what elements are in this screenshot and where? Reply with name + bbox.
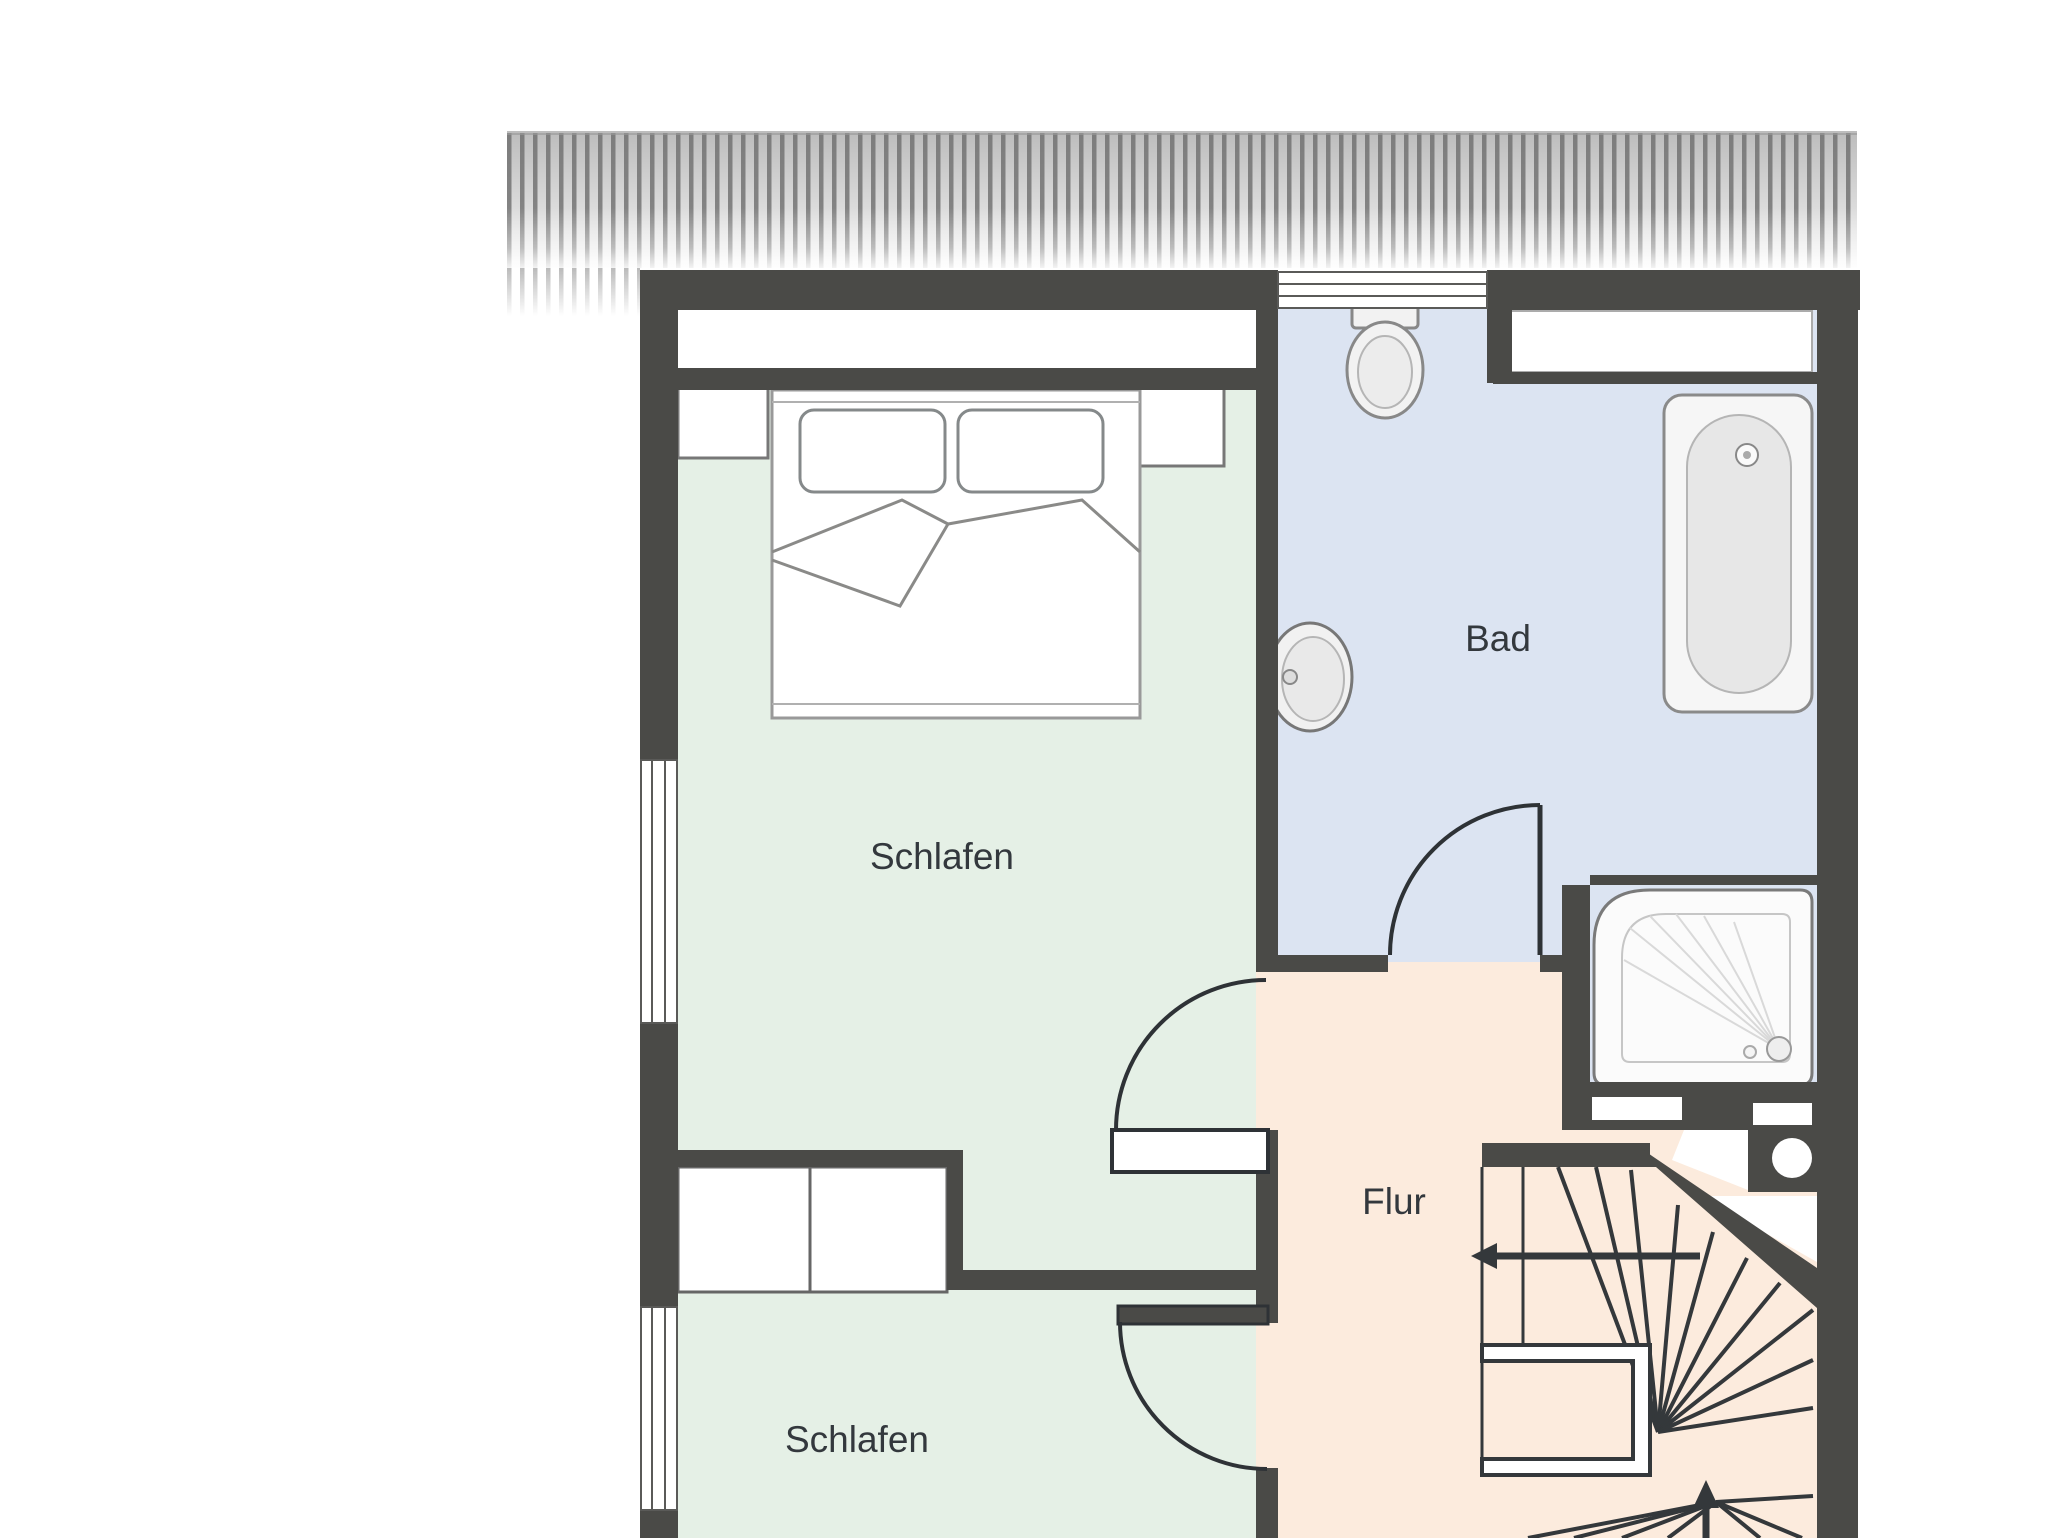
window-left-top: [641, 760, 677, 1023]
label-bedroom-top: Schlafen: [870, 836, 1014, 877]
nightstand-left: [678, 388, 768, 458]
wall-left-3: [640, 1510, 678, 1538]
wardrobe: [678, 1167, 947, 1292]
label-bedroom-bottom: Schlafen: [785, 1419, 929, 1460]
wall-right: [1817, 270, 1858, 1538]
toilet: [1347, 302, 1423, 418]
floor-plan: Schlafen Bad Flur Schlafen: [0, 0, 2048, 1538]
wall-between-bedrooms: [678, 1150, 963, 1167]
wall-stairwell-top: [1482, 1143, 1650, 1167]
shaft-slot-right: [1753, 1103, 1812, 1125]
window-left-bottom: [641, 1307, 677, 1510]
floor-plan-page: Schlafen Bad Flur Schlafen: [0, 0, 2048, 1538]
pillow-right: [958, 410, 1103, 492]
wall-top-right: [1487, 270, 1860, 310]
knee-wall-line: [678, 368, 1256, 390]
double-bed: [772, 390, 1140, 718]
wall-left-2: [640, 1023, 678, 1307]
shower-tray: [1594, 890, 1812, 1085]
roof-niche-box: [1510, 311, 1812, 372]
wall-bedroom-bathroom: [1256, 270, 1278, 972]
flue-pipe: [1772, 1138, 1812, 1178]
window-bathroom-top: [1278, 272, 1487, 308]
label-hallway: Flur: [1362, 1181, 1426, 1222]
nightstand-right: [1140, 388, 1224, 466]
wall-top-left: [640, 270, 1278, 310]
label-bathroom: Bad: [1465, 618, 1531, 659]
shower-drain: [1767, 1037, 1791, 1061]
washbasin: [1268, 623, 1352, 731]
bathtub: [1664, 395, 1812, 712]
room-hallway: [1256, 962, 1563, 1538]
pillow-left: [800, 410, 945, 492]
wall-left-1: [640, 270, 678, 760]
shaft-slot-left: [1592, 1097, 1682, 1120]
